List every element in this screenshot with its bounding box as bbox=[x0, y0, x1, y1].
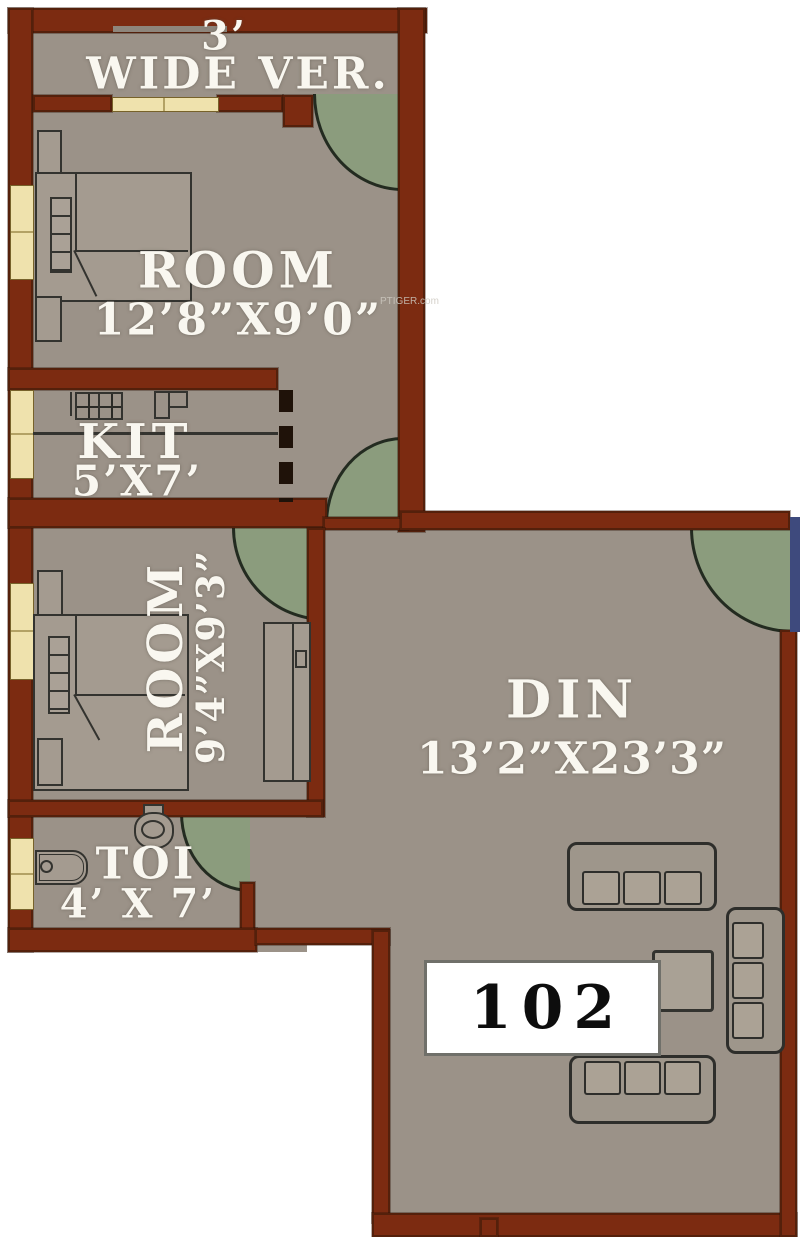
room1-dims: 12’8”X9’0” bbox=[94, 295, 382, 346]
room2-window-icon bbox=[10, 583, 34, 680]
sofa-icon bbox=[567, 842, 717, 911]
room1-label: ROOM bbox=[138, 241, 338, 300]
unit-number-badge: 102 bbox=[424, 960, 661, 1056]
room2-dims: 9’4”X9’3” bbox=[191, 550, 231, 764]
stove-edge bbox=[70, 392, 72, 416]
wall-dining-left-lower bbox=[372, 930, 390, 1223]
dining-label: DIN bbox=[506, 670, 638, 731]
room2-label-block: ROOM 9’4”X9’3” bbox=[61, 532, 311, 782]
toilet-dims: 4’ X 7’ bbox=[60, 881, 216, 928]
wall-dining-bottom bbox=[372, 1213, 797, 1237]
nightstand-icon bbox=[37, 130, 62, 176]
nightstand-icon bbox=[35, 296, 62, 342]
kitchen-partition-dashed bbox=[279, 390, 293, 502]
adjacent-unit-door bbox=[790, 517, 800, 632]
wall-fragment-divider bbox=[480, 1218, 498, 1237]
veranda-label: WIDE VER. bbox=[86, 49, 390, 100]
floor-plan: 102 3’ WIDE VER. ROOM 12’8”X9’0” KIT 5’X… bbox=[0, 0, 800, 1237]
sofa-icon bbox=[726, 907, 785, 1054]
nightstand-icon bbox=[37, 738, 63, 786]
coffee-table-icon bbox=[652, 950, 714, 1012]
unit-number: 102 bbox=[470, 973, 625, 1043]
kitchen-dims: 5’X7’ bbox=[72, 457, 202, 506]
pillow-icon bbox=[50, 197, 72, 273]
wall-veranda-stub bbox=[283, 95, 313, 127]
wall-wing-right bbox=[398, 8, 425, 532]
kitchen-window-icon bbox=[10, 390, 34, 479]
kitchen-sink-drain-icon bbox=[168, 391, 188, 408]
wall-passage-bottom bbox=[255, 928, 390, 945]
room2-label: ROOM bbox=[141, 561, 191, 754]
wall-room1-kitchen bbox=[8, 368, 278, 390]
wall-toilet-bottom bbox=[8, 928, 257, 952]
room1-window-icon bbox=[10, 185, 34, 280]
watermark: PTIGER.com bbox=[380, 296, 439, 307]
nightstand-icon bbox=[37, 570, 63, 618]
dining-dims: 13’2”X23’3” bbox=[417, 734, 727, 785]
sofa-icon bbox=[569, 1055, 716, 1124]
toilet-window-icon bbox=[10, 838, 34, 910]
wall-dining-top bbox=[400, 511, 790, 530]
wall-dining-top-thin bbox=[323, 517, 408, 530]
